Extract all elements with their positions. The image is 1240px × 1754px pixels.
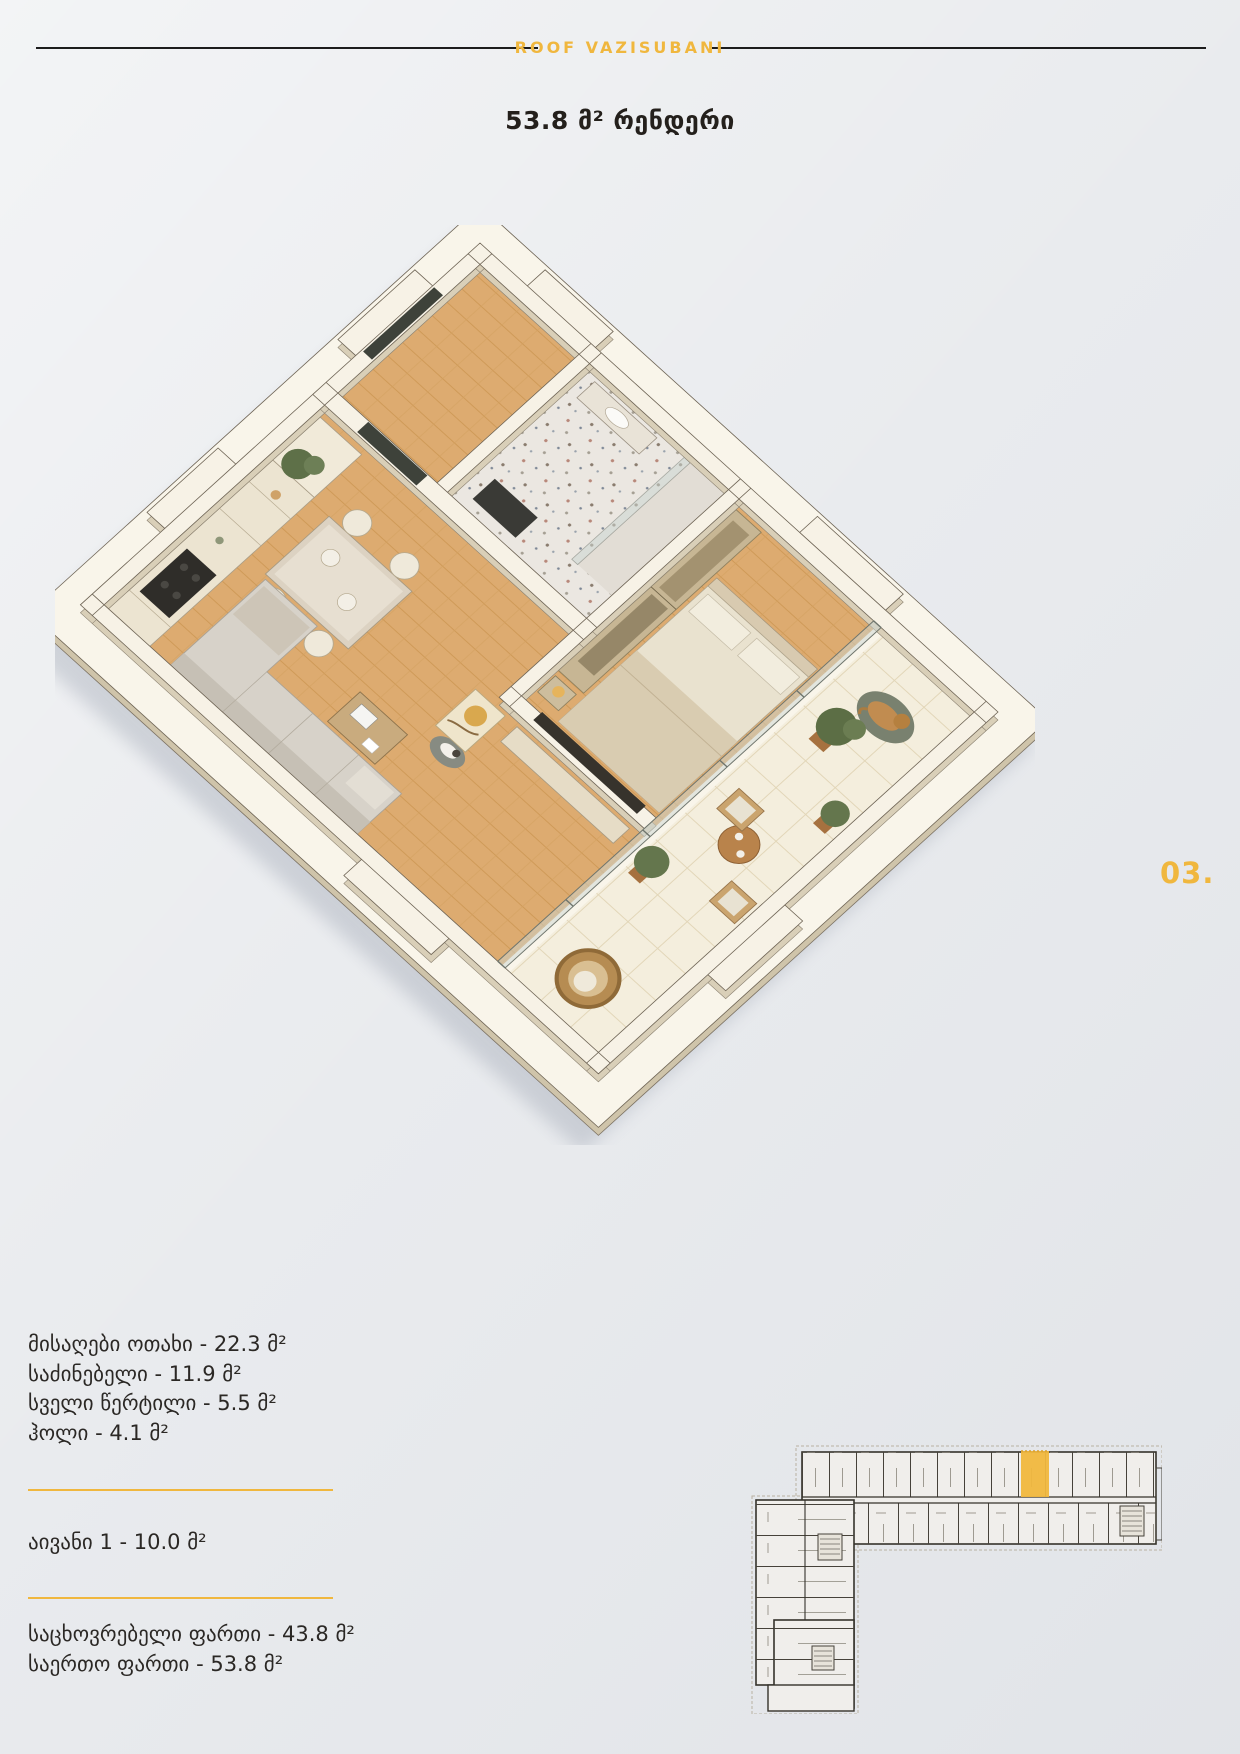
yellow-divider bbox=[28, 1597, 333, 1599]
yellow-divider bbox=[28, 1489, 333, 1491]
minimap-highlighted-unit bbox=[1021, 1451, 1049, 1497]
brand-label: ROOF VAZISUBANI bbox=[0, 38, 1240, 57]
minimap-left-wing bbox=[756, 1500, 854, 1711]
totals-list: საცხოვრებელი ფართი - 43.8 მ² საერთო ფართ… bbox=[28, 1620, 355, 1679]
brochure-page: ROOF VAZISUBANI 53.8 მ² რენდერი 03. bbox=[0, 0, 1240, 1754]
list-item: ჰოლი - 4.1 მ² bbox=[28, 1419, 287, 1449]
list-item: საცხოვრებელი ფართი - 43.8 მ² bbox=[28, 1620, 355, 1650]
stair-core bbox=[812, 1646, 834, 1670]
list-item: მისაღები ოთახი - 22.3 მ² bbox=[28, 1330, 287, 1360]
page-title: 53.8 მ² რენდერი bbox=[0, 106, 1240, 135]
list-item: აივანი 1 - 10.0 მ² bbox=[28, 1528, 207, 1558]
stair-core bbox=[818, 1534, 842, 1560]
list-item: საერთო ფართი - 53.8 მ² bbox=[28, 1650, 355, 1680]
stair-core bbox=[1120, 1506, 1144, 1536]
list-item: სველი წერტილი - 5.5 მ² bbox=[28, 1389, 287, 1419]
room-area-list: მისაღები ოთახი - 22.3 მ² საძინებელი - 11… bbox=[28, 1330, 287, 1448]
minimap-top-wing bbox=[802, 1452, 1162, 1544]
page-number: 03. bbox=[1160, 856, 1214, 890]
balcony-area-line: აივანი 1 - 10.0 მ² bbox=[28, 1528, 207, 1558]
apartment-3d-render bbox=[55, 225, 1035, 1145]
list-item: საძინებელი - 11.9 მ² bbox=[28, 1360, 287, 1390]
floor-plan-minimap bbox=[748, 1442, 1162, 1714]
